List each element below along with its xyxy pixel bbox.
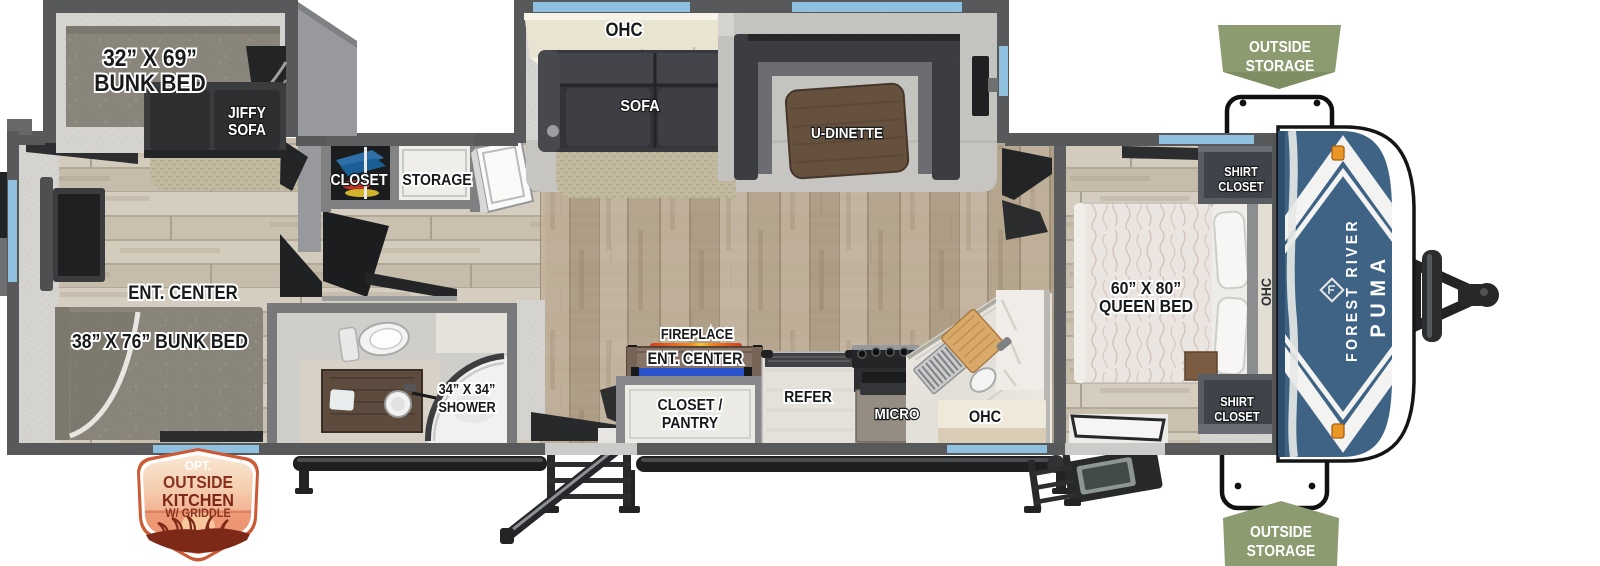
svg-text:OUTSIDE: OUTSIDE xyxy=(1249,39,1311,56)
svg-text:CLOSET: CLOSET xyxy=(1218,179,1264,194)
svg-text:STORAGE: STORAGE xyxy=(1247,543,1316,560)
svg-text:ENT. CENTER: ENT. CENTER xyxy=(128,282,238,303)
svg-text:U-DINETTE: U-DINETTE xyxy=(811,125,883,142)
svg-text:ENT. CENTER: ENT. CENTER xyxy=(647,350,742,368)
svg-text:W/ GRIDDLE: W/ GRIDDLE xyxy=(165,508,231,520)
svg-text:SOFA: SOFA xyxy=(620,97,659,115)
svg-text:SHIRT: SHIRT xyxy=(1220,394,1254,409)
svg-text:BUNK BED: BUNK BED xyxy=(94,70,205,97)
svg-text:32” X 69”: 32” X 69” xyxy=(103,45,197,72)
svg-text:CLOSET /: CLOSET / xyxy=(658,396,724,414)
svg-text:38” X 76” BUNK BED: 38” X 76” BUNK BED xyxy=(72,330,248,352)
svg-text:QUEEN BED: QUEEN BED xyxy=(1099,296,1193,316)
svg-text:OUTSIDE: OUTSIDE xyxy=(1250,524,1312,541)
svg-text:PUMA: PUMA xyxy=(1367,252,1391,337)
svg-text:SOFA: SOFA xyxy=(228,122,266,139)
svg-text:SHOWER: SHOWER xyxy=(438,399,495,415)
svg-text:REFER: REFER xyxy=(784,388,832,406)
svg-text:OHC: OHC xyxy=(605,19,642,40)
svg-text:OHC: OHC xyxy=(969,408,1001,426)
svg-text:STORAGE: STORAGE xyxy=(402,171,471,189)
svg-text:OHC: OHC xyxy=(1258,278,1274,306)
svg-text:STORAGE: STORAGE xyxy=(1246,58,1315,75)
svg-text:SHIRT: SHIRT xyxy=(1224,164,1258,179)
svg-text:FOREST RIVER: FOREST RIVER xyxy=(1345,218,1362,362)
svg-text:CLOSET: CLOSET xyxy=(330,171,388,189)
svg-text:34” X 34”: 34” X 34” xyxy=(439,381,496,397)
svg-text:CLOSET: CLOSET xyxy=(1214,409,1260,424)
svg-text:OPT.: OPT. xyxy=(185,459,211,473)
svg-text:FIREPLACE: FIREPLACE xyxy=(661,326,733,342)
svg-text:OUTSIDE: OUTSIDE xyxy=(163,472,233,492)
svg-text:PANTRY: PANTRY xyxy=(662,414,718,432)
svg-text:MICRO: MICRO xyxy=(875,406,920,423)
svg-text:JIFFY: JIFFY xyxy=(228,105,266,122)
